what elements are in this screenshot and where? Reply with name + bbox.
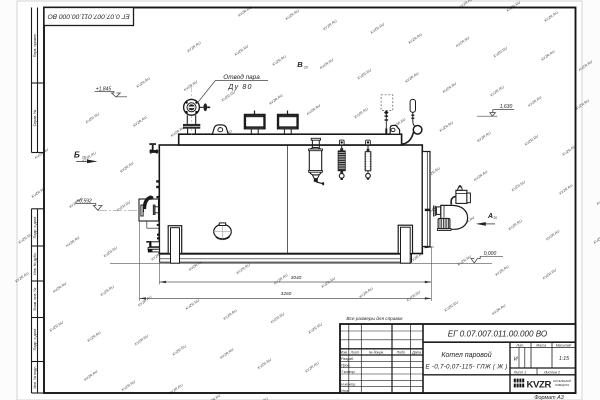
svg-text:Взам. инв. №: Взам. инв. № bbox=[33, 288, 37, 311]
svg-text:Формат А3: Формат А3 bbox=[534, 395, 564, 400]
svg-text:Утв.: Утв. bbox=[341, 389, 349, 393]
svg-text:Ду 80: Ду 80 bbox=[227, 84, 252, 91]
svg-text:Пров.: Пров. bbox=[341, 363, 350, 367]
svg-text:0,000: 0,000 bbox=[484, 251, 497, 257]
svg-text:Разраб.: Разраб. bbox=[341, 357, 354, 361]
svg-text:Дата: Дата bbox=[411, 350, 421, 354]
svg-text:Б: Б bbox=[74, 150, 80, 160]
svg-text:Масса: Масса bbox=[536, 343, 546, 347]
svg-text:№ докум.: № докум. bbox=[369, 350, 384, 354]
svg-text:1:15: 1:15 bbox=[559, 356, 569, 362]
svg-text:Е -0,7-0,07-115- ГЛЖ ( Ж ): Е -0,7-0,07-115- ГЛЖ ( Ж ) bbox=[425, 364, 507, 371]
svg-text:Листов 2: Листов 2 bbox=[543, 370, 560, 374]
svg-text:20: 20 bbox=[304, 66, 308, 70]
svg-text:3260: 3260 bbox=[281, 291, 292, 297]
svg-text:Котел паровой: Котел паровой bbox=[441, 351, 491, 359]
svg-text:Все размеры для справок: Все размеры для справок bbox=[346, 316, 403, 321]
svg-text:А: А bbox=[487, 213, 493, 220]
svg-text:В: В bbox=[297, 60, 303, 69]
svg-text:Н.контр.: Н.контр. bbox=[341, 383, 356, 387]
svg-text:Подп. и дата: Подп. и дата bbox=[33, 328, 37, 351]
svg-text:Масштаб: Масштаб bbox=[556, 343, 572, 347]
svg-text:KVZR: KVZR bbox=[527, 380, 552, 391]
svg-text:Лит.: Лит. bbox=[515, 343, 524, 347]
svg-text:Т.контр.: Т.контр. bbox=[341, 370, 356, 374]
svg-text:И: И bbox=[514, 357, 518, 363]
svg-text:ЗАВОД РЭ: ЗАВОД РЭ bbox=[555, 383, 569, 387]
svg-text:20: 20 bbox=[494, 216, 498, 220]
svg-text:ЕГ 0.07.007.011.00.000 ВО: ЕГ 0.07.007.011.00.000 ВО bbox=[47, 13, 130, 20]
svg-text:ЕГ 0.07.007.011.00.000 ВО: ЕГ 0.07.007.011.00.000 ВО bbox=[448, 330, 548, 339]
svg-text:Инв. № подл.: Инв. № подл. bbox=[33, 366, 37, 389]
svg-text:Изм.: Изм. bbox=[341, 350, 348, 354]
svg-text:Подп. и дата: Подп. и дата bbox=[33, 216, 37, 239]
svg-text:Справ. №: Справ. № bbox=[33, 110, 37, 127]
svg-text:1,630: 1,630 bbox=[500, 104, 513, 110]
svg-text:Лист 1: Лист 1 bbox=[513, 370, 526, 374]
svg-text:Перв. примен.: Перв. примен. bbox=[33, 33, 37, 58]
svg-text:20: 20 bbox=[82, 156, 86, 160]
svg-text:Подп.: Подп. bbox=[397, 350, 406, 354]
svg-text:3040: 3040 bbox=[291, 275, 302, 281]
svg-text:Лист: Лист bbox=[350, 350, 360, 354]
svg-text:Отвод пара: Отвод пара bbox=[223, 73, 260, 81]
svg-text:Инв. № дубл.: Инв. № дубл. bbox=[33, 252, 37, 275]
